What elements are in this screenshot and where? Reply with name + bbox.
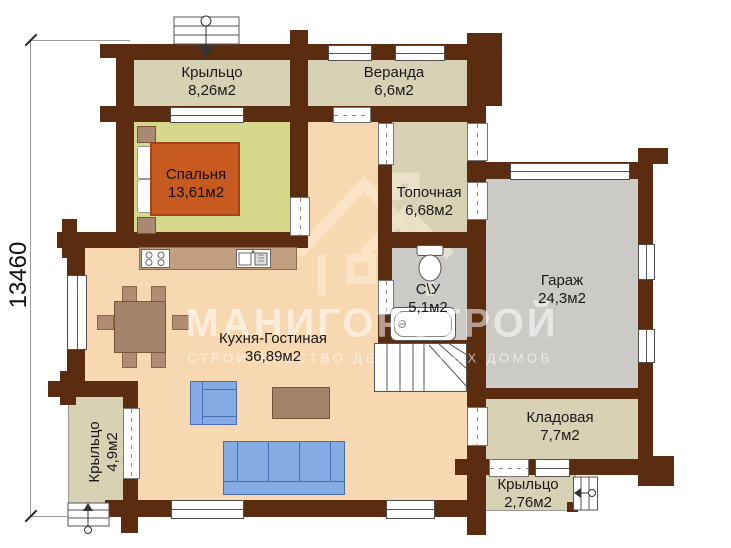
door-opening: [378, 123, 394, 165]
dimension-extension-line: [30, 40, 130, 41]
door-opening: [290, 197, 310, 236]
dimension-extension-line: [30, 516, 68, 517]
toilet-icon: [414, 245, 446, 283]
window: [386, 500, 435, 519]
dimension-value: 13460: [5, 242, 33, 309]
room-label-porch-left: Крыльцо4,9м2: [86, 421, 122, 482]
nightstand: [137, 217, 156, 234]
dining-chair: [122, 352, 137, 368]
wall-segment: [467, 388, 653, 399]
room-label-porch-top: Крыльцо8,26м2: [181, 64, 242, 100]
sink-icon: [236, 249, 271, 268]
room-label-boiler: Топочная6,68м2: [396, 184, 461, 220]
armchair: [190, 381, 237, 425]
room-label-garage: Гараж24,3м2: [538, 272, 586, 308]
room-label-bedroom: Спальня13,61м2: [166, 166, 226, 202]
coffee-table: [272, 387, 330, 419]
window: [171, 500, 244, 519]
door-opening: [489, 459, 529, 477]
dining-chair: [97, 315, 114, 330]
wall-segment: [100, 44, 116, 58]
window: [395, 45, 445, 61]
dining-chair: [151, 286, 166, 302]
door-opening: [333, 107, 371, 123]
window: [535, 459, 570, 477]
porch-bottom-stairs-icon: [573, 474, 603, 514]
wall-segment: [100, 106, 467, 122]
room-label-storage: Кладовая7,7м2: [526, 409, 593, 445]
room-label-kitchen-living: Кухня-Гостиная36,89м2: [219, 330, 327, 366]
floor-plan: 13460 МАНИГОРСТРОЙ СТРОИТЕЛЬСТВО ДЕРЕВЯН…: [0, 0, 731, 548]
door-opening: [123, 408, 140, 479]
room-label-bathroom: С\У5,1м2: [408, 281, 448, 317]
wall-segment: [638, 456, 674, 486]
entrance-stairs-icon: [173, 12, 241, 60]
door-opening: [467, 407, 488, 446]
wall-segment: [467, 33, 502, 106]
window: [638, 329, 655, 363]
window: [638, 244, 655, 280]
wall-segment: [116, 44, 134, 248]
wall-segment: [121, 517, 138, 533]
wall-segment: [57, 232, 308, 248]
wall-segment: [638, 148, 668, 164]
room-label-veranda: Веранда6,6м2: [364, 64, 424, 100]
dining-chair: [151, 352, 166, 368]
wall-segment: [60, 371, 76, 405]
door-opening: [467, 182, 488, 220]
window: [510, 163, 630, 180]
dining-chair: [122, 286, 137, 302]
window: [170, 107, 244, 123]
window: [328, 45, 372, 61]
window: [67, 275, 87, 350]
dining-table: [114, 301, 166, 353]
sofa: [223, 441, 345, 495]
nightstand: [137, 126, 156, 143]
wall-segment: [638, 162, 653, 472]
window: [467, 123, 488, 161]
porch-left-stairs-icon: [67, 501, 111, 535]
stove-icon: [141, 249, 170, 268]
room-label-porch-bottom: Крыльцо2,76м2: [497, 476, 558, 512]
